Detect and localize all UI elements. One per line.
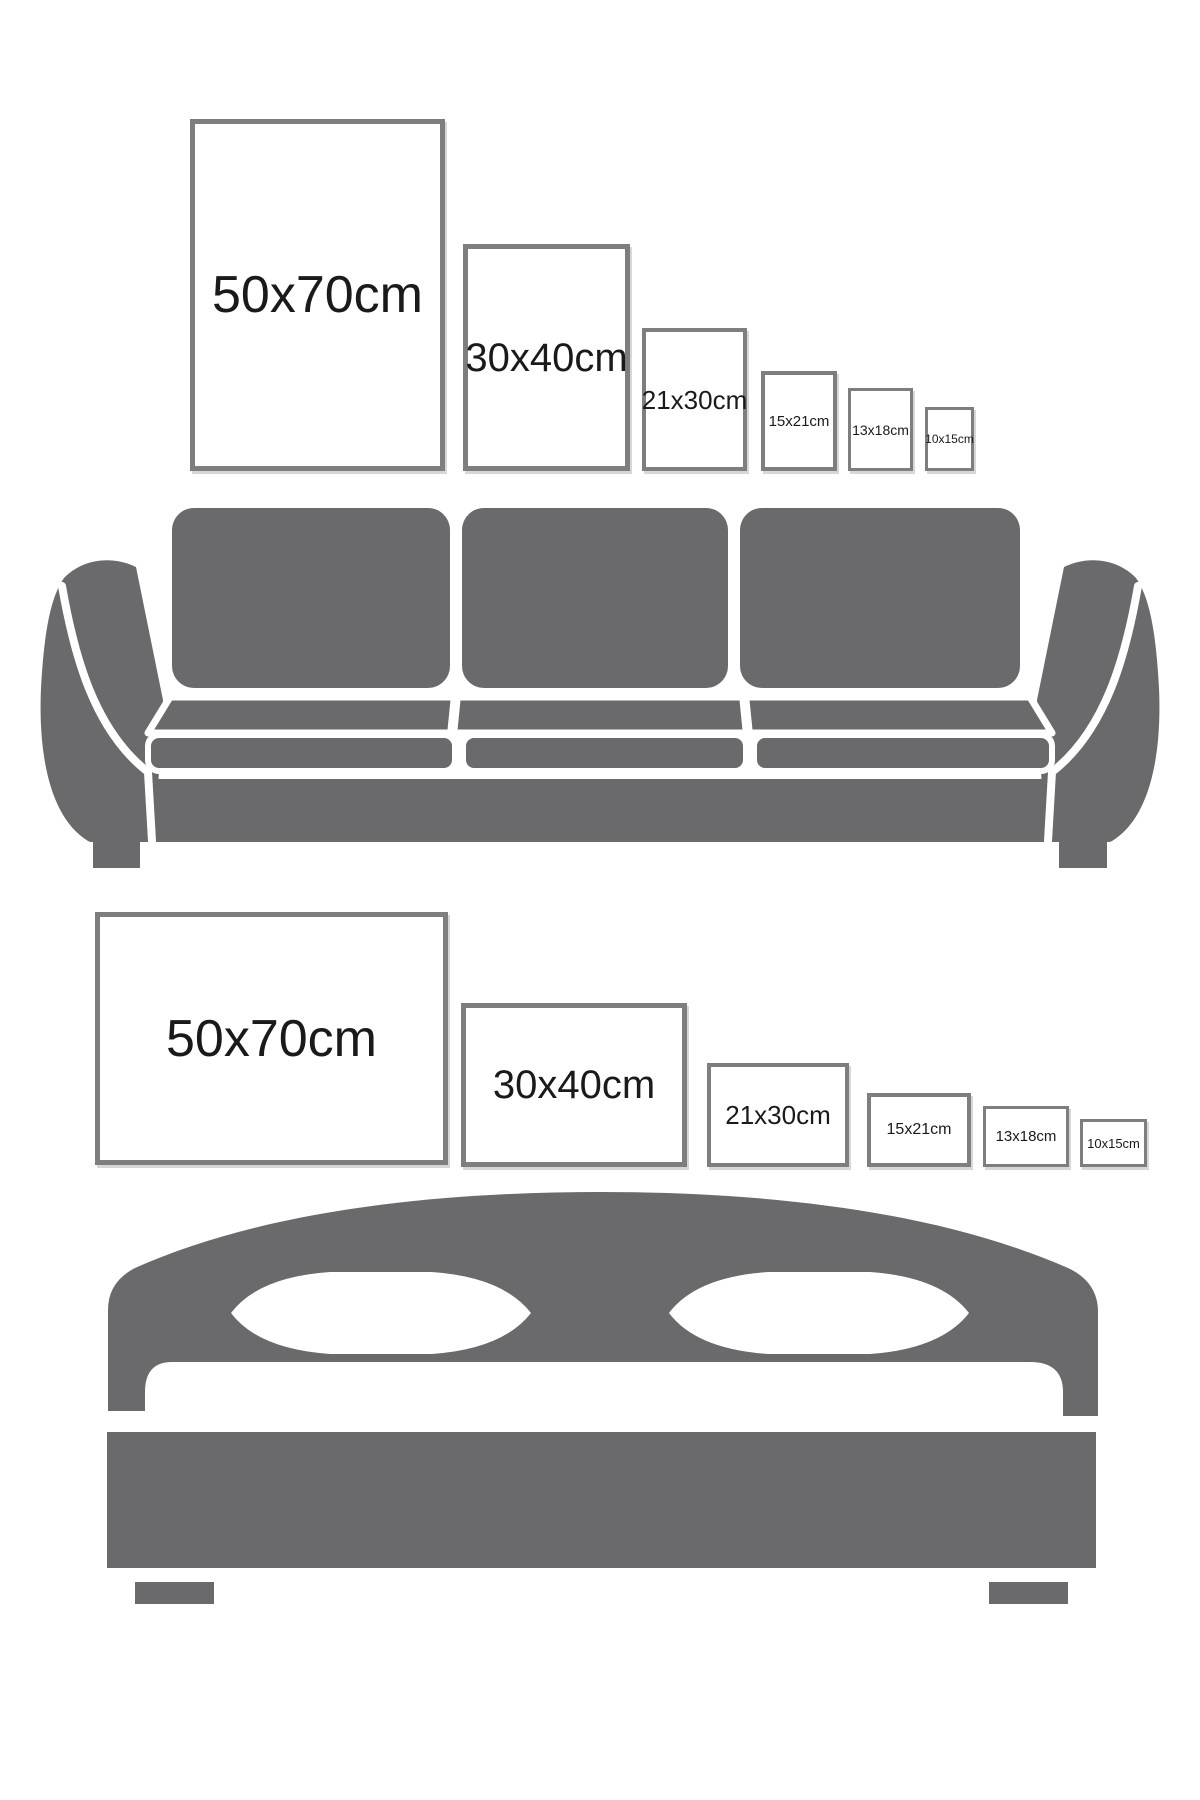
frame-size-label: 10x15cm <box>925 433 974 445</box>
sofa-seat-deck <box>148 697 1052 733</box>
frame-30x40cm-landscape: 30x40cm <box>461 1003 687 1167</box>
deck-divider-left <box>452 695 456 735</box>
sofa-back-cushion-3 <box>740 508 1020 688</box>
bed-pillow-right <box>669 1272 969 1354</box>
frame-size-label: 50x70cm <box>166 1013 377 1065</box>
sofa-silhouette <box>41 508 1160 868</box>
frame-21x30cm-landscape: 21x30cm <box>707 1063 849 1167</box>
bed-base <box>107 1432 1096 1568</box>
bed-silhouette <box>107 1192 1098 1604</box>
frame-size-label: 21x30cm <box>642 387 748 413</box>
frame-30x40cm-portrait: 30x40cm <box>463 244 630 471</box>
frame-15x21cm-landscape: 15x21cm <box>867 1093 971 1167</box>
deck-divider-right <box>744 695 748 735</box>
sofa-base <box>86 779 1114 842</box>
bed-right-foot <box>989 1582 1068 1604</box>
frame-size-label: 15x21cm <box>769 414 830 429</box>
frame-size-label: 15x21cm <box>887 1122 952 1138</box>
frame-50x70cm-landscape: 50x70cm <box>95 912 448 1165</box>
frame-10x15cm-landscape: 10x15cm <box>1080 1119 1147 1167</box>
frame-size-label: 30x40cm <box>465 338 627 378</box>
sofa-seat-cushion-3 <box>754 735 1052 771</box>
frame-13x18cm-landscape: 13x18cm <box>983 1106 1069 1167</box>
sofa-right-foot <box>1059 836 1107 868</box>
bed-pillow-left <box>231 1272 531 1354</box>
frame-10x15cm-portrait: 10x15cm <box>925 407 974 471</box>
bed-left-foot <box>135 1582 214 1604</box>
frame-size-label: 13x18cm <box>996 1129 1057 1144</box>
sofa-back-cushion-2 <box>462 508 728 688</box>
frame-size-label: 21x30cm <box>725 1102 831 1128</box>
sofa-seat-cushion-1 <box>148 735 455 771</box>
sofa-left-foot <box>93 836 140 868</box>
frame-13x18cm-portrait: 13x18cm <box>848 388 913 471</box>
frame-15x21cm-portrait: 15x21cm <box>761 371 837 471</box>
frame-21x30cm-portrait: 21x30cm <box>642 328 747 471</box>
frame-50x70cm-portrait: 50x70cm <box>190 119 445 471</box>
frame-size-label: 50x70cm <box>212 269 423 321</box>
frame-size-guide-diagram: 50x70cm30x40cm21x30cm15x21cm13x18cm10x15… <box>0 0 1200 1800</box>
frame-size-label: 10x15cm <box>1087 1137 1140 1150</box>
sofa-back-cushion-1 <box>172 508 450 688</box>
sofa-seat-cushion-2 <box>463 735 746 771</box>
frame-size-label: 30x40cm <box>493 1065 655 1105</box>
frame-size-label: 13x18cm <box>852 423 909 437</box>
